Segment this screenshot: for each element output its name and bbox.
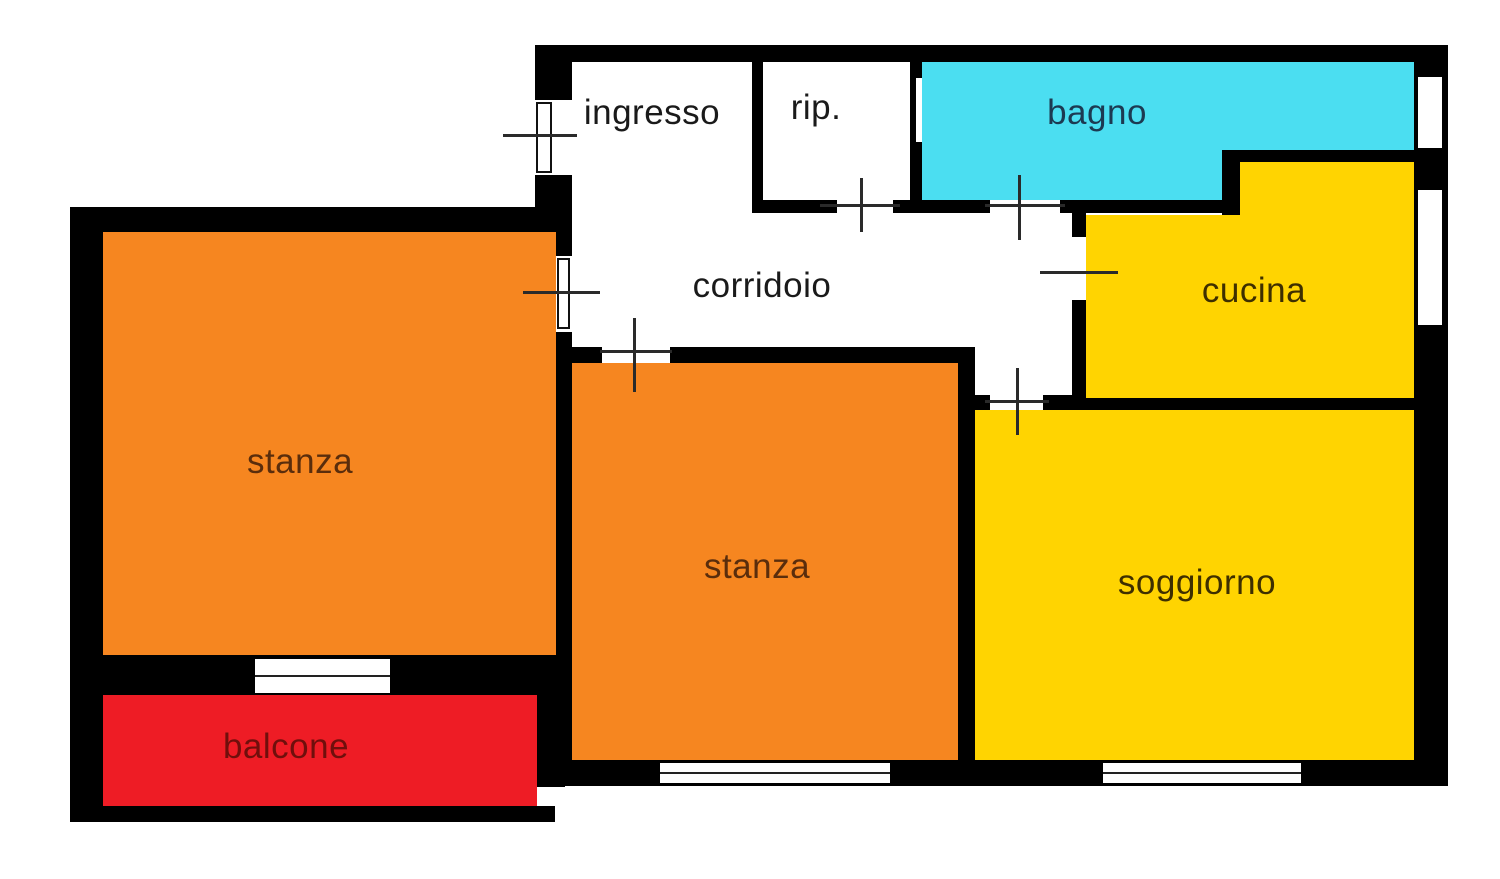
window (1418, 77, 1442, 148)
door-swing-line (1018, 175, 1021, 240)
wall-segment (70, 207, 103, 822)
window-frame-line (660, 772, 890, 774)
room-label-rip: rip. (791, 88, 842, 128)
window (660, 763, 890, 783)
wall-segment (70, 806, 555, 822)
door-swing-line (600, 350, 672, 353)
room-bagno-area (922, 62, 1414, 150)
wall-segment (70, 207, 572, 232)
window (1418, 190, 1442, 325)
window (1103, 763, 1301, 783)
room-label-soggiorno: soggiorno (1118, 563, 1276, 603)
room-label-balcone: balcone (223, 727, 349, 767)
room-label-ingresso: ingresso (584, 93, 720, 133)
window (255, 659, 390, 693)
door-leaf (536, 102, 552, 173)
room-bagno-area (922, 150, 1222, 200)
door-swing-line (633, 318, 636, 392)
room-label-bagno: bagno (1047, 93, 1147, 133)
door-swing-line (985, 204, 1065, 207)
room-label-stanza-centro: stanza (704, 547, 810, 587)
room-label-cucina: cucina (1202, 271, 1306, 311)
room-label-corridoio: corridoio (693, 266, 832, 306)
floor-plan-canvas: ingressorip.bagnocucinacorridoiostanzast… (0, 0, 1500, 879)
door-swing-line (523, 291, 600, 294)
door-opening (1072, 237, 1086, 300)
door-swing-line (1016, 368, 1019, 435)
wall-segment (537, 695, 565, 787)
door-swing-line (860, 178, 863, 232)
room-label-stanza-sx: stanza (247, 442, 353, 482)
door-opening (916, 78, 922, 142)
window-frame-line (1103, 772, 1301, 774)
wall-segment (752, 45, 763, 213)
window-frame-line (255, 675, 390, 677)
door-swing-line (503, 134, 577, 137)
room-cucina-area (1240, 162, 1414, 215)
wall-segment (1414, 45, 1448, 786)
door-swing-line (1040, 271, 1118, 274)
wall-segment (1228, 148, 1418, 162)
